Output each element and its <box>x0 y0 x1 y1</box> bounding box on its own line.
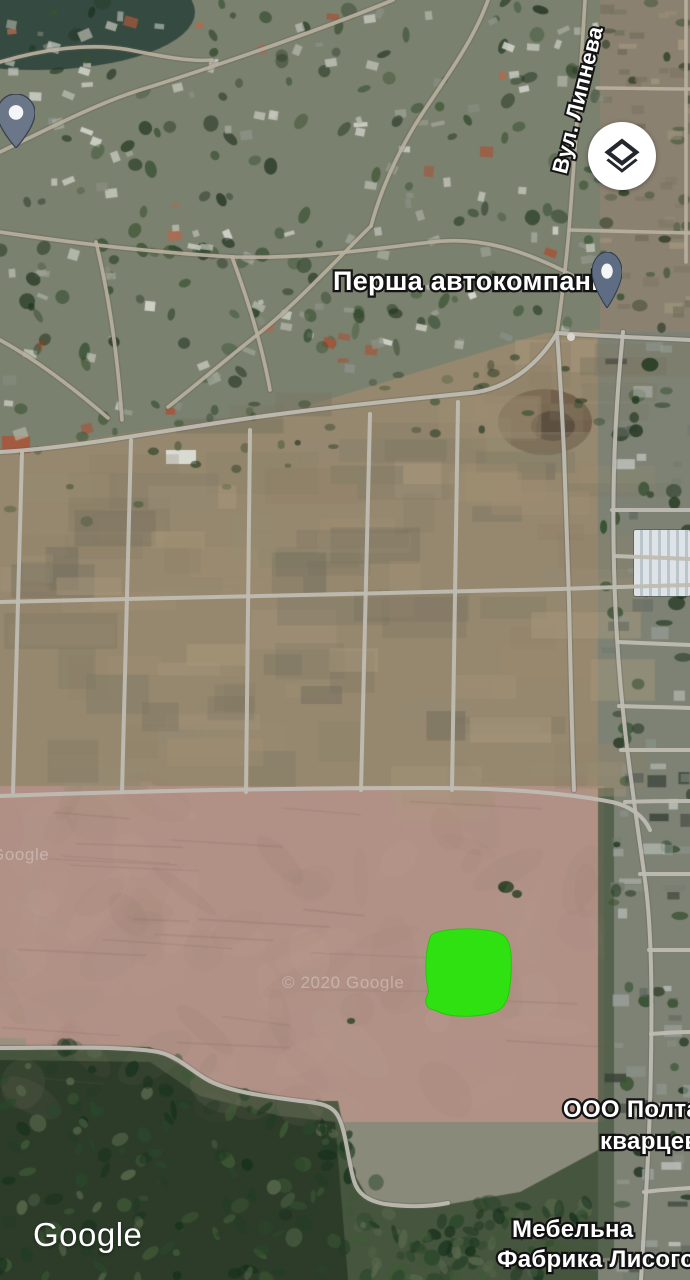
warehouse-building <box>634 530 690 596</box>
poi-label-bottom-line2[interactable]: Фабрика Лисого <box>497 1246 690 1274</box>
copyright-watermark-partial: © 2020 Google <box>0 845 49 865</box>
poi-label-primary[interactable]: Перша автокомпанія <box>333 266 615 297</box>
layers-icon <box>603 137 641 175</box>
google-logo: Google <box>33 1216 142 1254</box>
map-viewport[interactable]: © 2020 Google © 2020 Google Вул. Липнева… <box>0 0 690 1280</box>
poi-label-right-line2[interactable]: кварцев <box>600 1128 690 1156</box>
poi-label-bottom-line1[interactable]: Мебельна <box>512 1216 633 1244</box>
layers-button[interactable] <box>588 122 656 190</box>
copyright-watermark: © 2020 Google <box>282 973 404 993</box>
poi-label-right-line1[interactable]: ООО Полтав <box>563 1096 690 1124</box>
map-pin-icon[interactable] <box>0 94 35 148</box>
map-pin-icon[interactable] <box>592 252 622 308</box>
satellite-imagery <box>0 0 690 1280</box>
